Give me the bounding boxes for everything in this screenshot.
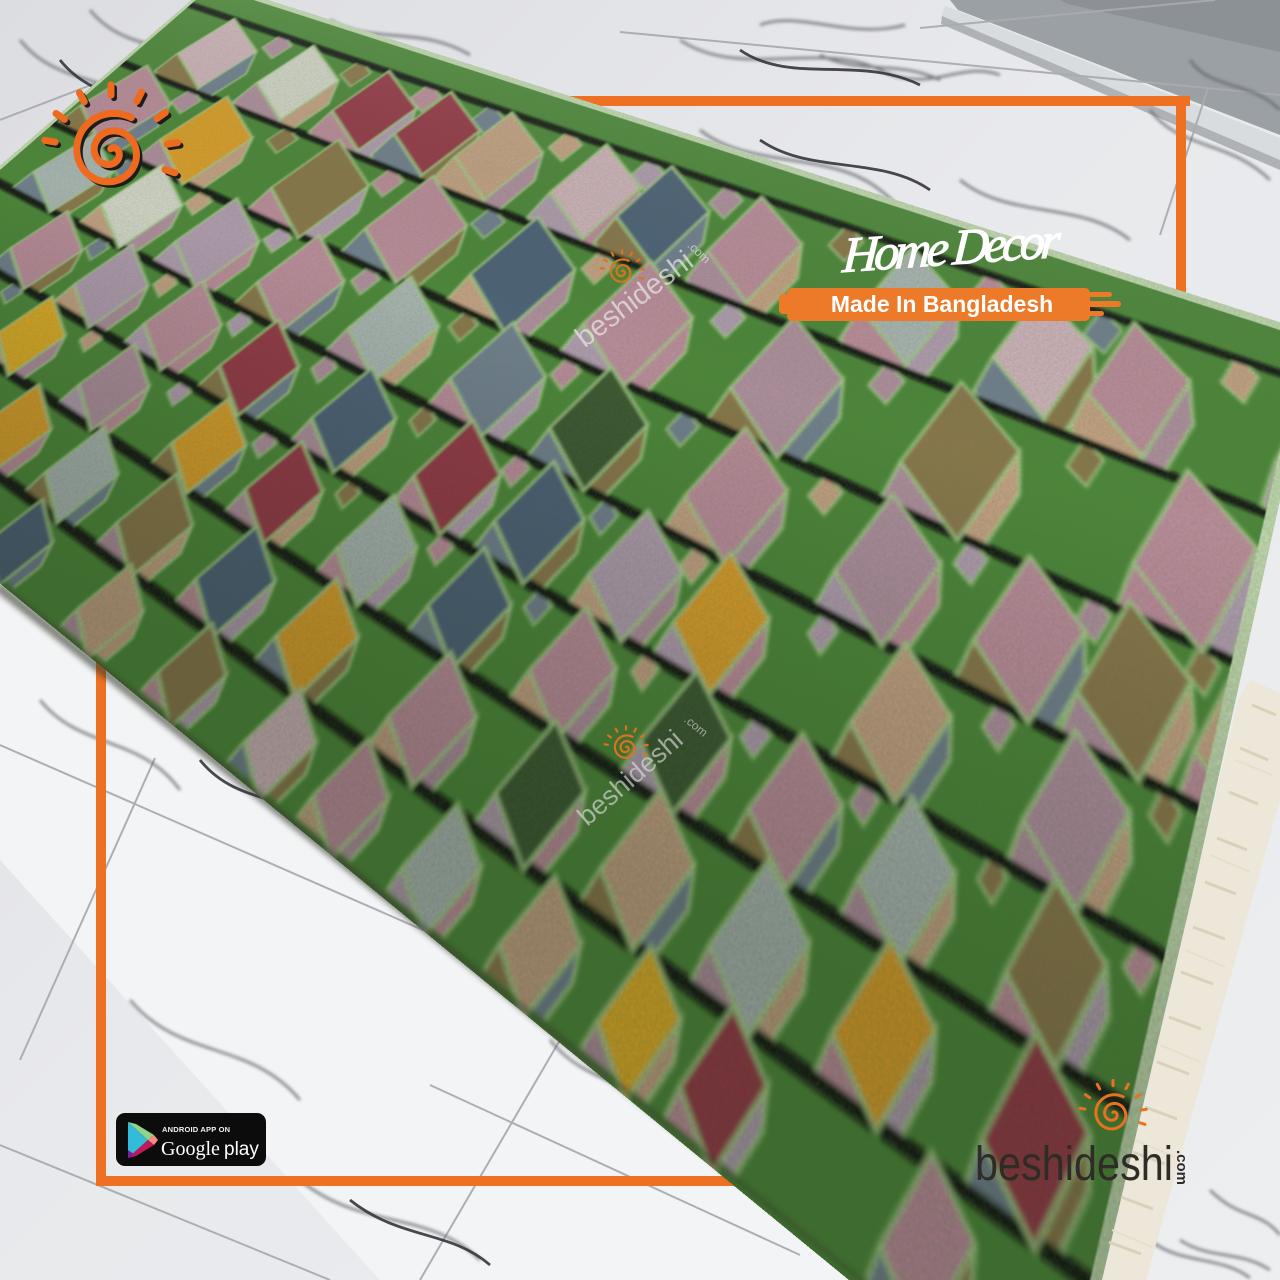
svg-text:Made In Bangladesh: Made In Bangladesh [831, 291, 1053, 317]
svg-text:.com: .com [1173, 1150, 1190, 1185]
svg-text:play: play [224, 1139, 259, 1160]
svg-text:beshideshi: beshideshi [569, 245, 699, 354]
svg-text:.com: .com [681, 712, 710, 739]
svg-text:beshideshi: beshideshi [975, 1138, 1173, 1191]
svg-text:beshideshi: beshideshi [572, 724, 689, 831]
svg-text:Home Decor: Home Decor [840, 212, 1063, 283]
svg-text:ANDROID APP ON: ANDROID APP ON [162, 1125, 230, 1134]
svg-text:Google: Google [161, 1138, 220, 1160]
